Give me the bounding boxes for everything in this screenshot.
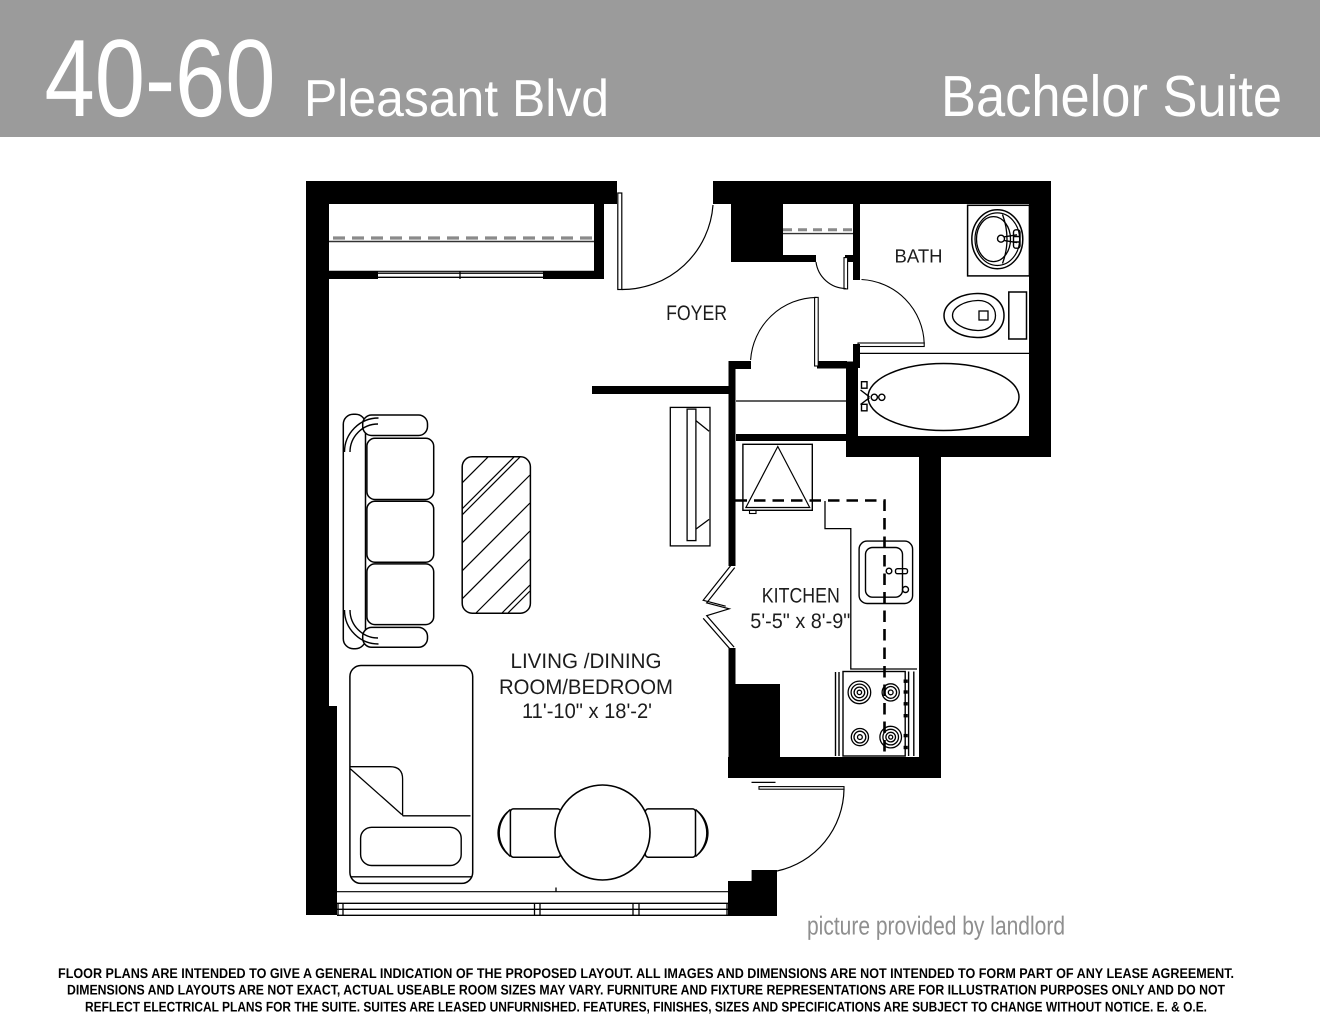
svg-text:11'-10" x 18'-2': 11'-10" x 18'-2' bbox=[522, 700, 652, 723]
svg-text:Bachelor Suite: Bachelor Suite bbox=[941, 64, 1282, 129]
svg-text:BATH: BATH bbox=[895, 247, 943, 268]
svg-text:LIVING /DINING: LIVING /DINING bbox=[511, 650, 662, 673]
svg-text:FOYER: FOYER bbox=[666, 302, 727, 325]
svg-text:DIMENSIONS AND LAYOUTS ARE NOT: DIMENSIONS AND LAYOUTS ARE NOT EXACT, AC… bbox=[67, 982, 1225, 998]
svg-text:ROOM/BEDROOM: ROOM/BEDROOM bbox=[499, 676, 673, 699]
svg-text:FLOOR PLANS ARE INTENDED TO GI: FLOOR PLANS ARE INTENDED TO GIVE A GENER… bbox=[58, 965, 1234, 981]
svg-text:picture provided by landlord: picture provided by landlord bbox=[807, 911, 1065, 941]
svg-text:KITCHEN: KITCHEN bbox=[762, 584, 840, 607]
svg-text:5'-5" x 8'-9": 5'-5" x 8'-9" bbox=[750, 610, 850, 633]
svg-text:REFLECT ELECTRICAL PLANS FOR T: REFLECT ELECTRICAL PLANS FOR THE SUITE. … bbox=[85, 999, 1207, 1015]
svg-text:40-60: 40-60 bbox=[45, 17, 276, 140]
svg-text:Pleasant Blvd: Pleasant Blvd bbox=[304, 70, 609, 128]
